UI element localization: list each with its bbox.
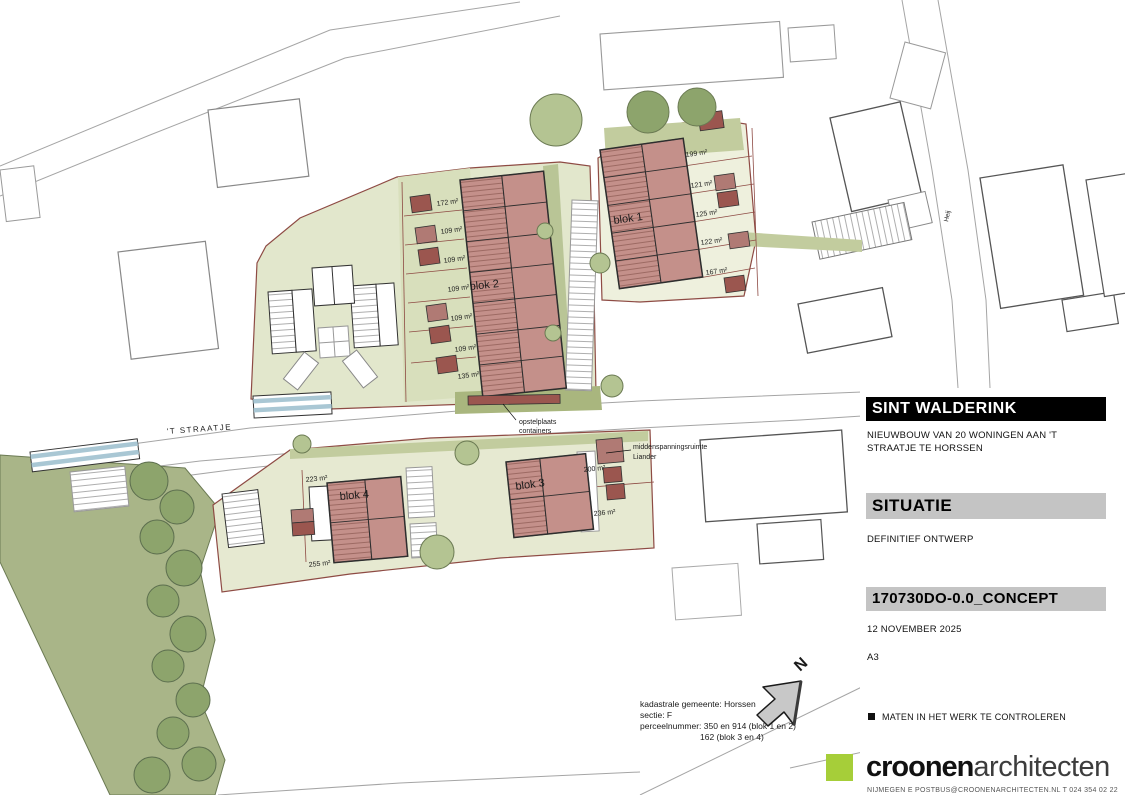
tree-icon — [134, 757, 170, 793]
tree-icon — [455, 441, 479, 465]
tree-icon — [530, 94, 582, 146]
paper-size-label: A3 — [867, 652, 879, 663]
street-label: 'T STRAATJE — [167, 422, 233, 436]
document-code: 170730DO-0.0_CONCEPT — [866, 587, 1106, 611]
trafo-label: Liander — [633, 454, 657, 461]
logo-text-light: architecten — [973, 751, 1109, 784]
tree-icon — [152, 650, 184, 682]
project-description: NIEUWBOUW VAN 20 WONINGEN AAN 'T STRAATJ… — [867, 430, 1092, 456]
sheet-title: SITUATIE — [866, 493, 1106, 519]
tree-icon — [601, 375, 623, 397]
blok-3-building — [506, 454, 594, 538]
containers-label: containers — [519, 428, 552, 435]
svg-text:sectie: F: sectie: F — [640, 710, 672, 720]
logo-text-bold: croonen — [866, 751, 973, 784]
tree-icon — [182, 747, 216, 781]
tree-icon — [160, 490, 194, 524]
tree-icon — [130, 462, 168, 500]
company-logo: croonenarchitecten — [826, 751, 1110, 784]
north-letter: N — [791, 655, 811, 675]
tree-icon — [420, 535, 454, 569]
phase-label: DEFINITIEF ONTWERP — [867, 534, 974, 545]
date-label: 12 NOVEMBER 2025 — [867, 624, 962, 635]
tree-icon — [545, 325, 561, 341]
tree-icon — [537, 223, 553, 239]
tree-icon — [147, 585, 179, 617]
check-note: MATEN IN HET WERK TE CONTROLEREN — [868, 712, 1066, 722]
svg-text:162 (blok 3 en 4): 162 (blok 3 en 4) — [700, 732, 764, 742]
containers-label: opstelplaats — [519, 419, 557, 426]
tree-icon — [627, 91, 669, 133]
logo-green-square-icon — [826, 754, 853, 781]
blok4-label: blok 4 — [339, 488, 369, 503]
container-bar — [468, 394, 560, 405]
tree-icon — [176, 683, 210, 717]
trafo-label: middenspanningsruimte — [633, 444, 707, 451]
contact-line: NIJMEGEN E POSTBUS@CROONENARCHITECTEN.NL… — [867, 787, 1118, 794]
tree-icon — [590, 253, 610, 273]
svg-text:kadastrale gemeente: Horssen: kadastrale gemeente: Horssen — [640, 699, 756, 709]
tree-icon — [678, 88, 716, 126]
tree-icon — [140, 520, 174, 554]
trafo-building — [596, 438, 624, 464]
side-street-label: Heij — [943, 210, 952, 222]
siteplan-sheet: 172 m² 109 m² 109 m² 109 m² 109 m² 109 m… — [0, 0, 1125, 795]
titleblock: SINT WALDERINK NIEUWBOUW VAN 20 WONINGEN… — [860, 388, 1125, 795]
tree-icon — [170, 616, 206, 652]
project-title: SINT WALDERINK — [866, 397, 1106, 421]
tree-icon — [166, 550, 202, 586]
square-bullet-icon — [868, 713, 875, 720]
tree-icon — [157, 717, 189, 749]
tree-icon — [293, 435, 311, 453]
